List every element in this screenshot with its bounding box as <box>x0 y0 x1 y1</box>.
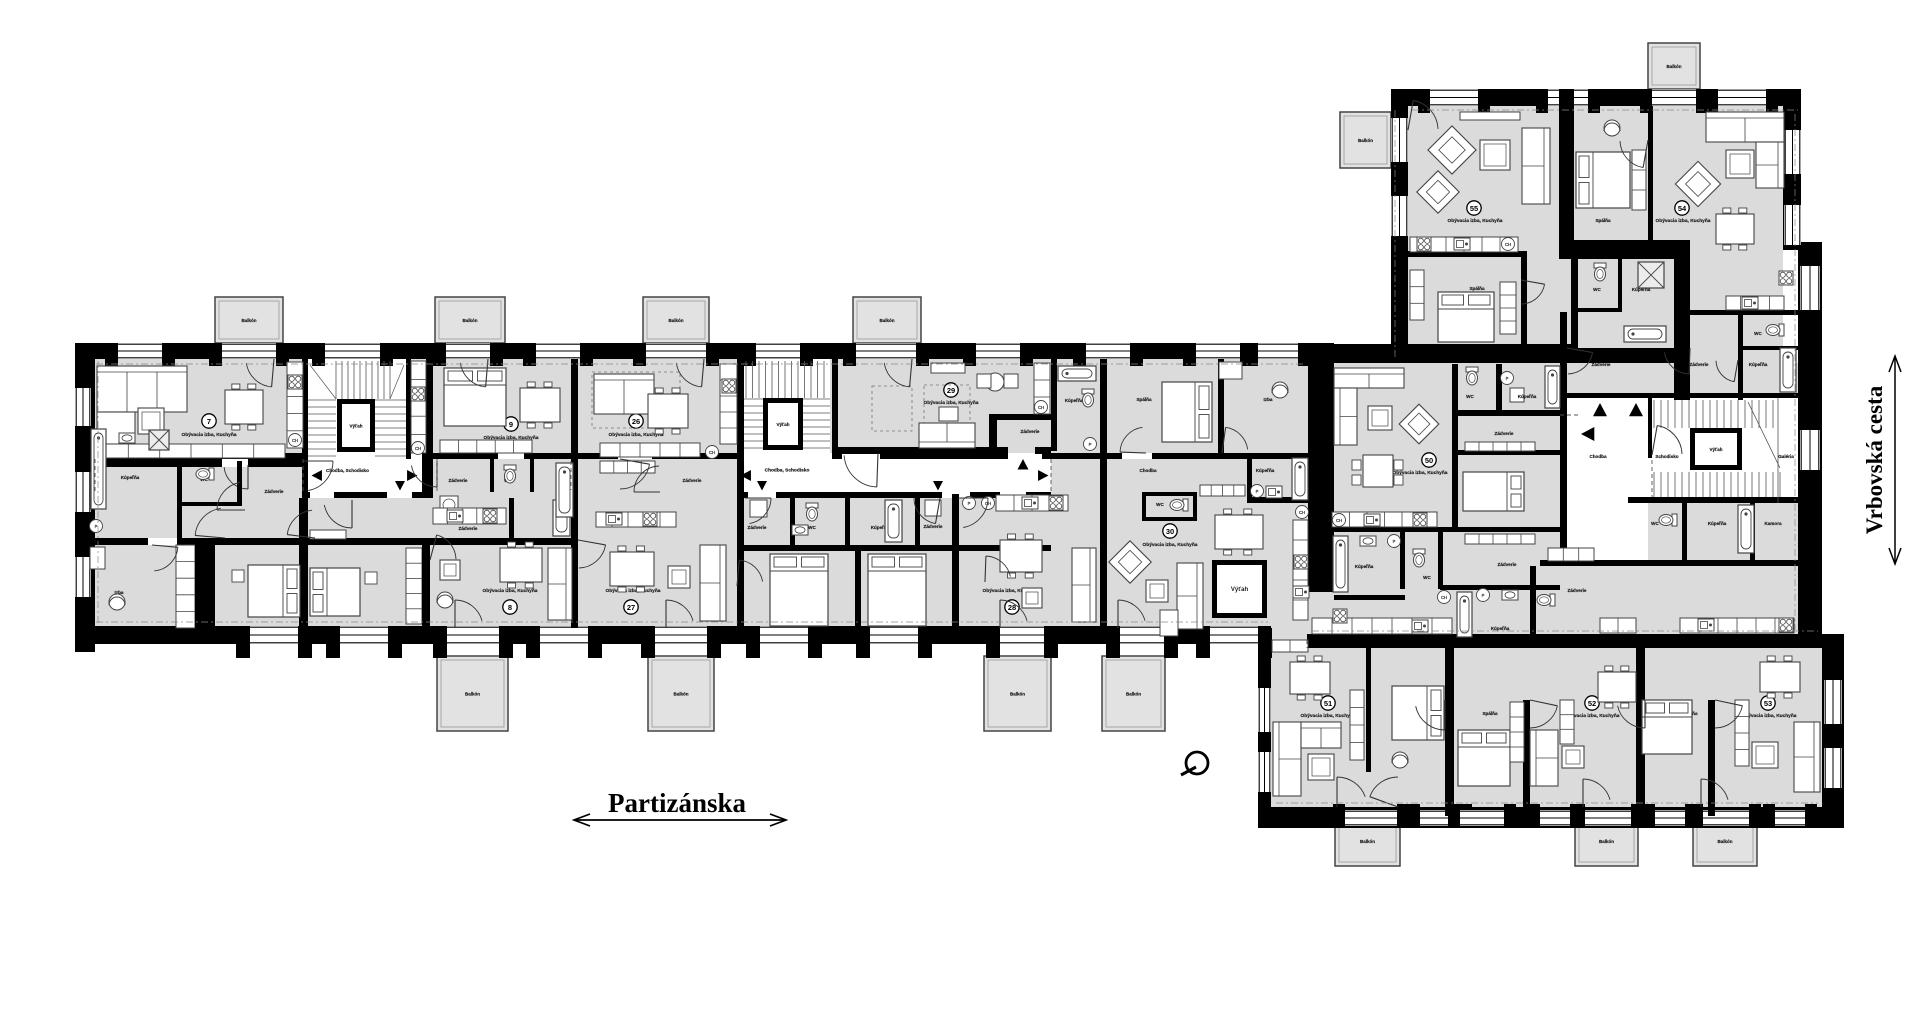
svg-text:Vrbovská cesta: Vrbovská cesta <box>1862 385 1887 534</box>
svg-text:P: P <box>1256 489 1259 494</box>
svg-text:P: P <box>1393 539 1396 544</box>
svg-text:CH: CH <box>1505 242 1511 247</box>
svg-text:Zádverie: Zádverie <box>1592 362 1611 367</box>
svg-text:Balkón: Balkón <box>1360 839 1375 844</box>
svg-text:Obývacia izba, Kuchyňa: Obývacia izba, Kuchyňa <box>1742 713 1797 719</box>
svg-text:P: P <box>95 524 98 529</box>
svg-text:Obývacia izba, Kuchyňa: Obývacia izba, Kuchyňa <box>606 588 661 594</box>
svg-text:P: P <box>1089 442 1092 447</box>
svg-text:Kamora: Kamora <box>1764 521 1782 526</box>
svg-text:CH: CH <box>709 450 715 455</box>
svg-text:Kúpeľňa: Kúpeľňa <box>1708 521 1727 526</box>
svg-text:Obývacia izba, Kuchyňa: Obývacia izba, Kuchyňa <box>1301 713 1356 719</box>
svg-text:8: 8 <box>508 603 512 612</box>
svg-text:Zádverie: Zádverie <box>748 525 767 530</box>
svg-text:Zádverie: Zádverie <box>1495 431 1514 436</box>
svg-text:27: 27 <box>627 603 635 612</box>
svg-text:29: 29 <box>947 386 955 395</box>
svg-text:P: P <box>1506 376 1509 381</box>
svg-text:Kúpeľňa: Kúpeľňa <box>1256 468 1275 473</box>
svg-text:50: 50 <box>1425 456 1433 465</box>
svg-text:Obývacia izba, Kuchyňa: Obývacia izba, Kuchyňa <box>1448 218 1503 224</box>
svg-text:Kúpeľňa: Kúpeľňa <box>1491 626 1510 631</box>
svg-text:Balkón: Balkón <box>1599 839 1614 844</box>
svg-text:Zádverie: Zádverie <box>1690 362 1709 367</box>
svg-text:Kúpeľňa: Kúpeľňa <box>1355 564 1374 569</box>
svg-text:P: P <box>968 501 971 506</box>
svg-text:CH: CH <box>292 438 298 443</box>
svg-text:P: P <box>1482 593 1485 598</box>
svg-text:Izba: Izba <box>1264 397 1273 402</box>
svg-text:26: 26 <box>632 417 640 426</box>
svg-text:Zádverie: Zádverie <box>1568 588 1587 593</box>
svg-text:Obývacia izba, Kuchyňa: Obývacia izba, Kuchyňa <box>182 432 237 438</box>
svg-text:Chodba, Schodisko: Chodba, Schodisko <box>765 468 810 474</box>
svg-text:Balkón: Balkón <box>1358 138 1373 143</box>
svg-text:WC: WC <box>1754 331 1762 336</box>
svg-text:9: 9 <box>509 420 513 429</box>
svg-text:Kúpeľňa: Kúpeľňa <box>1518 394 1537 399</box>
svg-text:30: 30 <box>1166 527 1174 536</box>
svg-text:55: 55 <box>1470 204 1478 213</box>
svg-text:Zádverie: Zádverie <box>924 524 943 529</box>
svg-text:54: 54 <box>1678 204 1687 213</box>
svg-text:Zádverie: Zádverie <box>1021 429 1040 434</box>
svg-text:CH: CH <box>1441 595 1447 600</box>
svg-text:WC: WC <box>1423 575 1431 580</box>
svg-text:Zádverie: Zádverie <box>265 489 284 494</box>
svg-text:Chodba: Chodba <box>1589 454 1607 459</box>
svg-text:Kúpeľňa: Kúpeľňa <box>1065 398 1084 403</box>
svg-text:Balkón: Balkón <box>462 318 477 323</box>
svg-text:CH: CH <box>415 446 421 451</box>
svg-text:Zádverie: Zádverie <box>459 526 478 531</box>
svg-text:Kúpeľňa: Kúpeľňa <box>1749 362 1768 367</box>
svg-text:Výťah: Výťah <box>1231 587 1249 593</box>
svg-text:Balkón: Balkón <box>1666 64 1681 69</box>
svg-text:Obývacia izba, Kuchyňa: Obývacia izba, Kuchyňa <box>483 588 538 594</box>
svg-text:WC: WC <box>1593 287 1601 292</box>
svg-text:Balkón: Balkón <box>1717 839 1732 844</box>
svg-text:Spálňa: Spálňa <box>1469 286 1485 291</box>
svg-text:Výťah: Výťah <box>1710 447 1723 452</box>
svg-text:Balkón: Balkón <box>673 692 688 697</box>
svg-text:Balkón: Balkón <box>1010 692 1025 697</box>
svg-text:Zádverie: Zádverie <box>449 478 468 483</box>
svg-text:7: 7 <box>207 417 211 426</box>
svg-text:WC: WC <box>1466 394 1474 399</box>
svg-text:Kúpeľňa: Kúpeľňa <box>121 475 140 480</box>
svg-text:Partizánska: Partizánska <box>608 788 746 818</box>
svg-text:Balkón: Balkón <box>465 692 480 697</box>
svg-text:Zádverie: Zádverie <box>683 478 702 483</box>
svg-text:Schodisko: Schodisko <box>1655 454 1678 459</box>
svg-text:Balkón: Balkón <box>1126 692 1141 697</box>
svg-text:Spálňa: Spálňa <box>1482 711 1498 716</box>
svg-text:CH: CH <box>1038 405 1044 410</box>
svg-text:Balkón: Balkón <box>879 318 894 323</box>
svg-text:WC: WC <box>1156 502 1164 507</box>
svg-text:CH: CH <box>1299 510 1305 515</box>
svg-text:51: 51 <box>1324 699 1332 708</box>
svg-text:Balkón: Balkón <box>668 318 683 323</box>
svg-text:Galéria: Galéria <box>1778 454 1794 459</box>
svg-text:WC: WC <box>808 525 816 530</box>
svg-text:Obývacia izba, Kuchyňa: Obývacia izba, Kuchyňa <box>924 400 979 406</box>
svg-text:Výťah: Výťah <box>777 422 790 427</box>
svg-text:Spálňa: Spálňa <box>1136 397 1152 402</box>
svg-text:Spálňa: Spálňa <box>1595 218 1611 223</box>
svg-text:Zádverie: Zádverie <box>1498 562 1517 567</box>
svg-text:Výťah: Výťah <box>350 424 363 429</box>
svg-text:WC: WC <box>1651 521 1659 526</box>
svg-text:Obývacia izba, Kuchyňa: Obývacia izba, Kuchyňa <box>1656 218 1711 224</box>
svg-text:Chodba: Chodba <box>1139 468 1157 473</box>
svg-text:Obývacia izba, Kuchyňa: Obývacia izba, Kuchyňa <box>1143 542 1198 548</box>
svg-text:53: 53 <box>1764 699 1772 708</box>
svg-text:52: 52 <box>1588 699 1596 708</box>
svg-text:CH: CH <box>1336 518 1342 523</box>
svg-text:Balkón: Balkón <box>241 318 256 323</box>
